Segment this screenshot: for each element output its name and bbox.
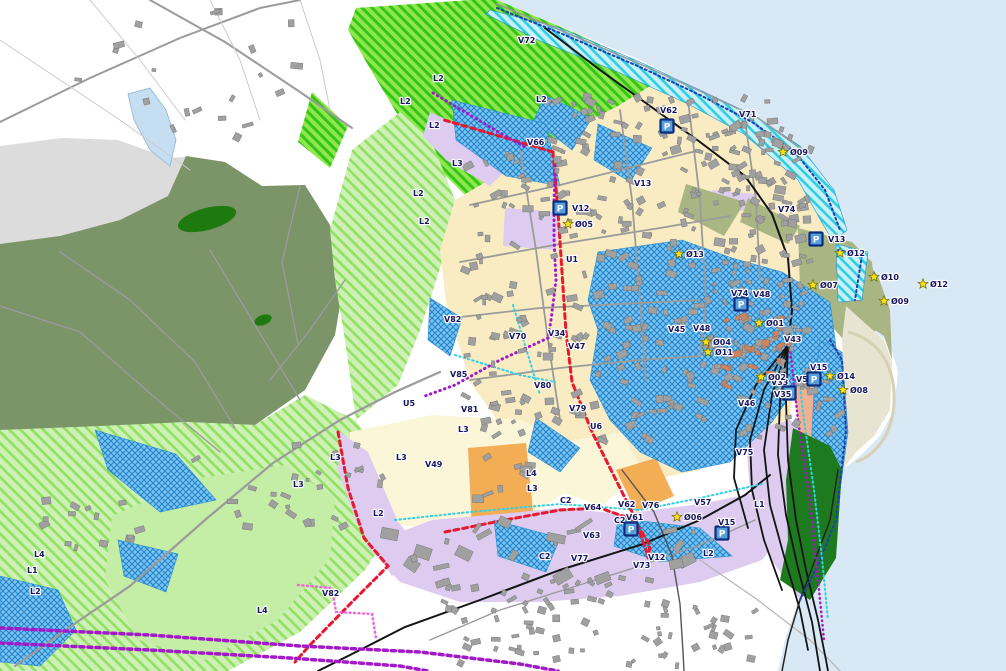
building [789, 346, 794, 351]
zone-label-L2: L2 [419, 217, 430, 226]
building [656, 626, 660, 630]
building [762, 339, 770, 346]
building [783, 278, 793, 283]
building [788, 219, 797, 228]
building [781, 221, 788, 227]
p-icon: P [664, 122, 671, 132]
zone-label-L4: L4 [34, 550, 45, 559]
building [756, 131, 765, 137]
zone-label-L2: L2 [400, 97, 411, 106]
building [688, 309, 697, 315]
building [722, 260, 729, 265]
zone-label-L2: L2 [433, 74, 444, 83]
building [317, 484, 323, 489]
building [507, 291, 514, 297]
building [485, 235, 490, 242]
plan-marker-label-V61: V61 [626, 513, 644, 522]
zone-label-V34: V34 [548, 329, 566, 338]
zone-label-V77: V77 [571, 554, 588, 563]
building [795, 329, 802, 332]
building [743, 262, 751, 267]
building [667, 246, 672, 251]
building [688, 262, 695, 268]
poi-label-Ø09: Ø09 [891, 296, 909, 306]
building [693, 605, 698, 610]
zone-label-V57: V57 [694, 498, 711, 507]
plan-marker-V61[interactable]: P [625, 523, 638, 536]
building [515, 410, 522, 415]
zone-label-L3: L3 [396, 453, 407, 462]
building [549, 347, 556, 351]
zone-label-L1: L1 [27, 566, 38, 575]
plan-marker-V13[interactable]: P [810, 233, 823, 246]
building [99, 540, 108, 547]
building [767, 118, 778, 125]
building [41, 497, 51, 505]
building [468, 337, 476, 346]
building [661, 613, 669, 617]
building [524, 621, 533, 625]
poi-label-Ø02: Ø02 [768, 372, 786, 382]
building [784, 253, 790, 257]
poi-label-Ø14: Ø14 [837, 371, 855, 381]
zone-label-V79: V79 [569, 404, 587, 413]
building [644, 601, 650, 608]
zone-label-V76: V76 [642, 501, 660, 510]
building [65, 541, 72, 546]
building [543, 353, 553, 360]
building [489, 371, 496, 375]
p-icon: P [811, 375, 818, 385]
zone-label-C2: C2 [560, 496, 571, 505]
building [292, 442, 302, 449]
building [657, 632, 661, 637]
building [127, 535, 134, 539]
building [758, 177, 767, 184]
building [491, 637, 500, 641]
zone-label-V48: V48 [693, 324, 711, 333]
poi-label-Ø12: Ø12 [847, 248, 865, 258]
building [658, 408, 668, 413]
building [473, 495, 484, 503]
building [803, 216, 811, 224]
building [597, 254, 605, 261]
zone-label-V71: V71 [739, 110, 757, 119]
zone-label-L2: L2 [703, 549, 714, 558]
building [610, 132, 620, 137]
building [644, 105, 651, 111]
zone-label-L3: L3 [330, 453, 341, 462]
building [591, 209, 598, 216]
building [762, 259, 768, 264]
plan-marker-label-V12: V12 [572, 204, 589, 213]
zone-label-L3: L3 [527, 484, 538, 493]
building [750, 255, 756, 262]
zone-label-V62: V62 [618, 500, 635, 509]
zoning-map[interactable]: V72L2L2L2V71L2V66L3V13L2V74L2U1V48V82V48… [0, 0, 1006, 671]
building [705, 153, 713, 161]
building [290, 62, 302, 69]
building [749, 170, 756, 178]
zone-label-V70: V70 [509, 332, 527, 341]
zone-label-V46: V46 [738, 399, 756, 408]
building [632, 324, 642, 332]
p-icon: P [813, 235, 820, 245]
building [478, 232, 483, 236]
building [648, 307, 657, 315]
zone-label-L2: L2 [413, 189, 424, 198]
zone-label-L2: L2 [30, 587, 41, 596]
building [642, 232, 651, 238]
poi-label-Ø09: Ø09 [790, 147, 808, 157]
building [608, 284, 617, 290]
building [479, 259, 482, 264]
building [633, 135, 642, 143]
building [218, 116, 226, 121]
building [774, 185, 786, 194]
building [670, 239, 676, 246]
building [626, 661, 633, 668]
building [537, 352, 541, 357]
plan-marker-label-V15: V15 [810, 363, 828, 372]
building [714, 201, 719, 206]
building [766, 148, 773, 152]
zone-label-U5: U5 [403, 399, 415, 408]
poi-label-Ø07: Ø07 [820, 280, 838, 290]
building [68, 512, 75, 516]
map-canvas[interactable]: V72L2L2L2V71L2V66L3V13L2V74L2U1V48V82V48… [0, 0, 1006, 671]
building [757, 435, 762, 440]
building [285, 505, 290, 509]
zone-label-V82: V82 [322, 589, 339, 598]
zone-label-V74: V74 [778, 205, 796, 214]
zone-label-L2: L2 [536, 95, 547, 104]
plan-marker-V62[interactable]: P [661, 120, 674, 133]
zone-label-U1: U1 [566, 255, 578, 264]
plan-marker-label-V74: V74 [731, 289, 749, 298]
building [677, 137, 682, 145]
building [729, 238, 738, 244]
building [522, 178, 532, 183]
building [491, 361, 495, 368]
building [691, 530, 695, 535]
zone-label-V47: V47 [568, 342, 585, 351]
building [769, 203, 775, 210]
zone-label-V72: V72 [518, 36, 535, 45]
zone-label-L4: L4 [526, 469, 537, 478]
building [643, 335, 649, 341]
building [623, 286, 631, 291]
zone-label-V81: V81 [461, 405, 479, 414]
building [631, 285, 639, 291]
plan-marker-V12[interactable]: P [554, 202, 567, 215]
building [569, 648, 574, 654]
building [596, 371, 601, 377]
building [647, 96, 654, 103]
building [733, 263, 738, 269]
building [554, 156, 561, 163]
zone-label-L3: L3 [458, 425, 469, 434]
building [539, 211, 550, 216]
zone-label-L3: L3 [293, 480, 304, 489]
zone-label-L3: L3 [452, 159, 463, 168]
building [777, 358, 781, 364]
building [306, 478, 309, 482]
zone-label-V43: V43 [784, 335, 801, 344]
building [545, 398, 554, 405]
p-icon: P [628, 525, 635, 535]
building [702, 417, 708, 423]
building [509, 281, 517, 289]
building [742, 121, 747, 128]
zone-label-C2: C2 [539, 552, 550, 561]
building [655, 339, 664, 345]
building [785, 415, 792, 419]
building [750, 229, 756, 235]
building [622, 221, 631, 226]
building [714, 238, 726, 247]
building [746, 186, 750, 191]
building [765, 100, 770, 104]
building [464, 353, 471, 358]
plan-marker-label-V15: V15 [718, 518, 736, 527]
zone-label-V80: V80 [534, 381, 552, 390]
poi-label-Ø08: Ø08 [850, 385, 868, 395]
building [614, 161, 623, 169]
building [533, 651, 538, 655]
building [553, 615, 560, 622]
poi-label-Ø01: Ø01 [766, 318, 784, 328]
building [288, 20, 294, 27]
plan-marker-label-V35: V35 [774, 390, 792, 399]
zone-label-V49: V49 [425, 460, 443, 469]
zone-label-L2: L2 [429, 121, 440, 130]
zone-label-L2: L2 [373, 509, 384, 518]
building [74, 78, 81, 82]
zone-label-V45: V45 [668, 325, 686, 334]
zone-label-L1: L1 [754, 500, 765, 509]
building [227, 499, 238, 504]
building [712, 146, 718, 150]
building [714, 364, 720, 368]
building [119, 500, 127, 506]
building [43, 517, 48, 522]
poi-label-Ø11: Ø11 [715, 347, 733, 357]
poi-label-Ø12: Ø12 [930, 279, 948, 289]
p-icon: P [719, 529, 726, 539]
building [242, 523, 253, 531]
building [445, 605, 452, 612]
poi-label-Ø04: Ø04 [713, 337, 731, 347]
building [783, 301, 791, 308]
building [580, 649, 585, 653]
building [143, 98, 150, 106]
zone-label-U6: U6 [590, 422, 602, 431]
poi-label-Ø05: Ø05 [575, 219, 593, 229]
building [786, 234, 793, 240]
p-icon: P [738, 300, 745, 310]
building [523, 205, 534, 212]
p-icon: P [557, 204, 564, 214]
building [781, 427, 785, 432]
zone-label-V13: V13 [634, 179, 651, 188]
building [761, 149, 765, 155]
zone-label-V66: V66 [527, 138, 545, 147]
building [675, 663, 679, 669]
plan-marker-V15[interactable]: P [716, 527, 729, 540]
zone-label-V75: V75 [736, 448, 754, 457]
poi-label-Ø10: Ø10 [881, 272, 899, 282]
building [554, 168, 559, 173]
building [548, 343, 552, 347]
building [656, 395, 664, 403]
plan-marker-label-V13: V13 [828, 235, 845, 244]
building [498, 485, 503, 492]
zone-label-V48: V48 [753, 290, 771, 299]
building [720, 615, 729, 622]
zone-label-V12: V12 [648, 553, 665, 562]
building [481, 295, 487, 300]
building [663, 310, 668, 316]
building [618, 216, 623, 223]
building [346, 472, 352, 477]
building [742, 214, 751, 217]
building [745, 635, 753, 639]
building [271, 492, 277, 497]
building [590, 401, 600, 410]
plan-marker-label-V62: V62 [660, 106, 677, 115]
building [694, 303, 705, 309]
plan-marker-V74[interactable]: P [735, 298, 748, 311]
poi-label-Ø13: Ø13 [686, 249, 704, 259]
zone-label-V64: V64 [584, 503, 602, 512]
building [657, 291, 667, 295]
building [734, 340, 738, 345]
zone-label-V82: V82 [444, 315, 461, 324]
plan-marker-V15[interactable]: P [808, 373, 821, 386]
zone-label-V73: V73 [633, 561, 650, 570]
building [470, 584, 479, 592]
building [377, 480, 383, 488]
building [152, 68, 156, 72]
zone-label-V85: V85 [450, 370, 468, 379]
zone-label-L4: L4 [257, 606, 268, 615]
building [571, 599, 579, 605]
building [526, 624, 532, 629]
poi-label-Ø06: Ø06 [684, 512, 702, 522]
zone-label-V63: V63 [583, 531, 600, 540]
building [765, 403, 771, 409]
building [824, 397, 835, 401]
building [552, 634, 560, 642]
building [746, 655, 755, 663]
